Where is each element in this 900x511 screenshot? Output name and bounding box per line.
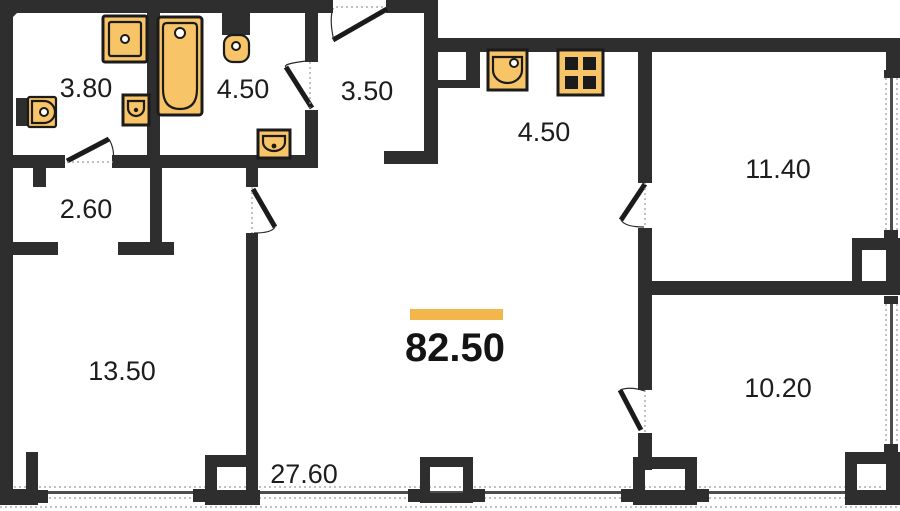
left-rooms-door (252, 187, 275, 233)
bathroom-tub-door (285, 61, 312, 108)
total-area: 82.50 (405, 309, 505, 370)
room-area-label-room-left: 13.50 (88, 356, 156, 386)
toilet-fixture (222, 13, 250, 62)
bathroom-left-door (67, 139, 114, 162)
bedroom-bottom-door (620, 388, 645, 433)
walls (0, 0, 900, 505)
room-area-label-bedroom-bottom: 10.20 (744, 373, 812, 403)
bedroom-top-door (621, 183, 645, 228)
bathtub-fixture (158, 17, 202, 115)
vanity-sink-fixture (258, 130, 290, 158)
room-area-label-bathroom-tub: 4.50 (217, 74, 270, 104)
stove-fixture (558, 50, 603, 95)
floor-plan: 3.80 4.50 3.50 4.50 11.40 2.60 13.50 27.… (0, 0, 900, 511)
room-area-label-closet: 2.60 (60, 194, 113, 224)
room-area-label-kitchen: 4.50 (518, 117, 571, 147)
room-area-label-bedroom-top: 11.40 (745, 154, 811, 184)
corner-sink-fixture (123, 95, 149, 125)
room-area-label-hallway: 3.50 (341, 76, 394, 106)
kitchen-sink-fixture (488, 50, 527, 90)
room-area-label-bathroom-left: 3.80 (60, 73, 113, 103)
room-area-label-living-room: 27.60 (270, 459, 338, 489)
floor-plan-drawing: 3.80 4.50 3.50 4.50 11.40 2.60 13.50 27.… (0, 0, 900, 511)
washing-machine-fixture (103, 16, 147, 62)
total-area-accent-bar (410, 309, 503, 320)
entry-door (331, 7, 387, 41)
total-area-value: 82.50 (405, 326, 505, 370)
wall-sink-fixture (16, 97, 56, 127)
